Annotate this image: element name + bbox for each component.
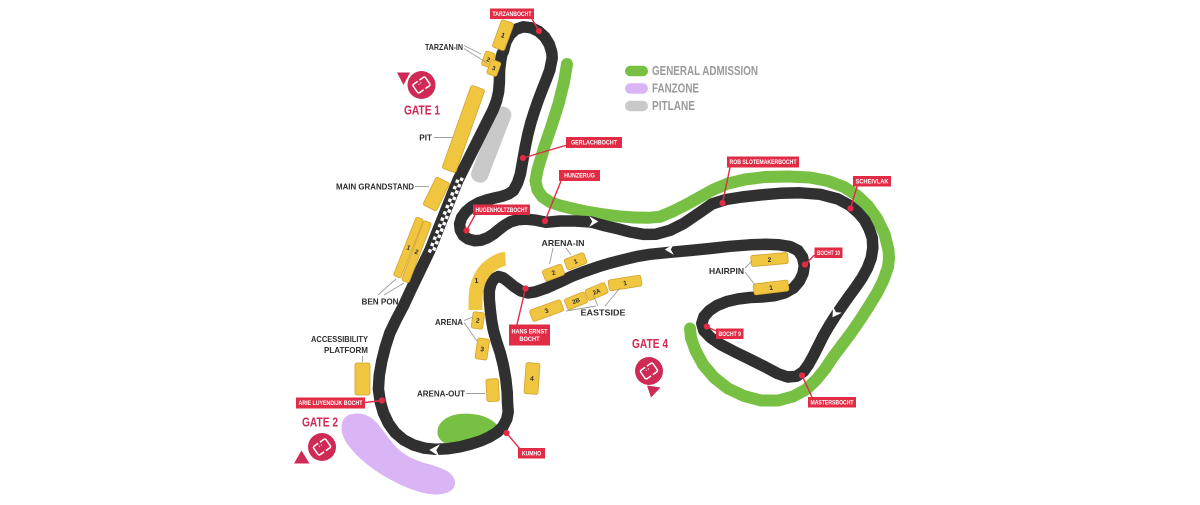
svg-text:BEN PON: BEN PON [362, 298, 399, 307]
svg-text:SCHEIVLAK: SCHEIVLAK [856, 179, 889, 186]
svg-text:ARENA-IN: ARENA-IN [542, 239, 585, 248]
svg-text:MAIN GRANDSTAND: MAIN GRANDSTAND [336, 183, 414, 192]
svg-text:ARENA: ARENA [435, 318, 463, 327]
svg-text:BOCHT 9: BOCHT 9 [719, 331, 742, 338]
svg-text:PIT: PIT [419, 134, 432, 143]
svg-text:GATE 1: GATE 1 [404, 104, 440, 118]
svg-text:ACCESSIBILITY: ACCESSIBILITY [311, 335, 368, 344]
svg-text:BOCHT 10: BOCHT 10 [817, 250, 840, 257]
svg-text:GATE 2: GATE 2 [302, 416, 338, 430]
svg-text:TARZANBOCHT: TARZANBOCHT [493, 11, 532, 18]
svg-text:HUGENHOLTZBOCHT: HUGENHOLTZBOCHT [476, 208, 528, 214]
svg-text:HANS ERNST: HANS ERNST [512, 329, 548, 336]
svg-text:HAIRPIN: HAIRPIN [709, 267, 744, 276]
svg-text:GERLACHBOCHT: GERLACHBOCHT [571, 140, 617, 147]
svg-text:EASTSIDE: EASTSIDE [581, 309, 627, 318]
svg-text:FANZONE: FANZONE [652, 82, 699, 96]
svg-text:BOCHT: BOCHT [519, 336, 539, 343]
svg-text:GATE 4: GATE 4 [632, 337, 668, 351]
svg-text:PITLANE: PITLANE [652, 99, 695, 113]
svg-text:ROB SLOTEMAKERBOCHT: ROB SLOTEMAKERBOCHT [730, 159, 797, 166]
svg-text:HUNZERUG: HUNZERUG [564, 173, 595, 180]
svg-text:MASTERSBOCHT: MASTERSBOCHT [811, 400, 854, 407]
svg-text:GENERAL ADMISSION: GENERAL ADMISSION [652, 64, 758, 78]
svg-text:PLATFORM: PLATFORM [324, 346, 368, 355]
svg-text:ARIE LUYENDIJK BOCHT: ARIE LUYENDIJK BOCHT [299, 401, 363, 407]
svg-text:ARENA-OUT: ARENA-OUT [417, 390, 465, 399]
svg-text:KUMHO: KUMHO [522, 451, 541, 458]
svg-text:1: 1 [475, 278, 479, 285]
svg-text:TARZAN-IN: TARZAN-IN [425, 43, 463, 52]
